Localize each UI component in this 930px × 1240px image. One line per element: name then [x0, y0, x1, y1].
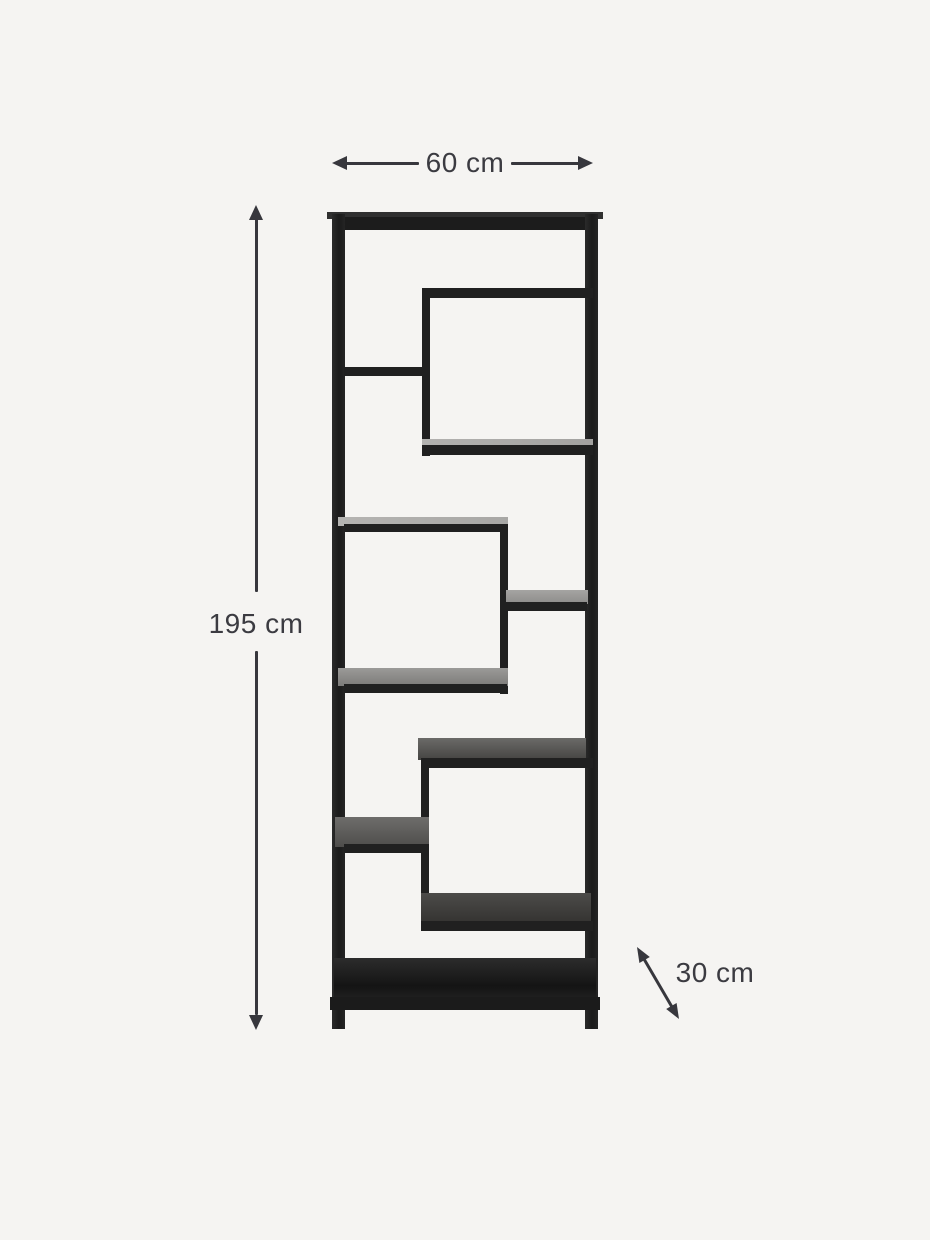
middle-left-cube-bottom-bar	[344, 684, 507, 693]
lower-right-cube-bottom-bar	[421, 921, 593, 931]
height-dimension-label: 195 cm	[186, 607, 326, 641]
bottom-glass-shelf	[334, 958, 596, 998]
height-dimension-line-upper	[255, 219, 258, 592]
middle-right-shelf-bar	[506, 602, 587, 611]
arrow-right-icon	[578, 156, 593, 170]
width-dimension-line-right	[511, 162, 579, 165]
upper-right-cube-bottom-bar	[422, 445, 593, 455]
middle-left-cube-top-bar	[344, 524, 507, 532]
depth-dimension-label: 30 cm	[660, 956, 770, 990]
arrow-left-icon	[332, 156, 347, 170]
left-crossbar	[344, 367, 427, 376]
frame-bottom-bar	[330, 997, 600, 1010]
product-dimension-diagram: 60 cm 195 cm 30 cm	[0, 0, 930, 1240]
upper-right-cube-top-bar	[422, 288, 593, 298]
lower-left-shelf-bar	[344, 844, 429, 853]
width-dimension-label: 60 cm	[405, 146, 525, 180]
lower-right-cube-top-bar	[421, 758, 593, 768]
shelf-unit	[330, 212, 600, 1029]
lower-right-cube-top-glass-shelf	[418, 738, 586, 760]
frame-top-bar	[334, 217, 596, 230]
arrow-down-icon	[249, 1015, 263, 1030]
lower-right-cube-bottom-glass-shelf	[421, 893, 591, 923]
lower-left-glass-shelf	[335, 817, 429, 847]
height-dimension-line-lower	[255, 651, 258, 1015]
frame-left-post	[332, 214, 345, 1029]
arrow-up-icon	[249, 205, 263, 220]
